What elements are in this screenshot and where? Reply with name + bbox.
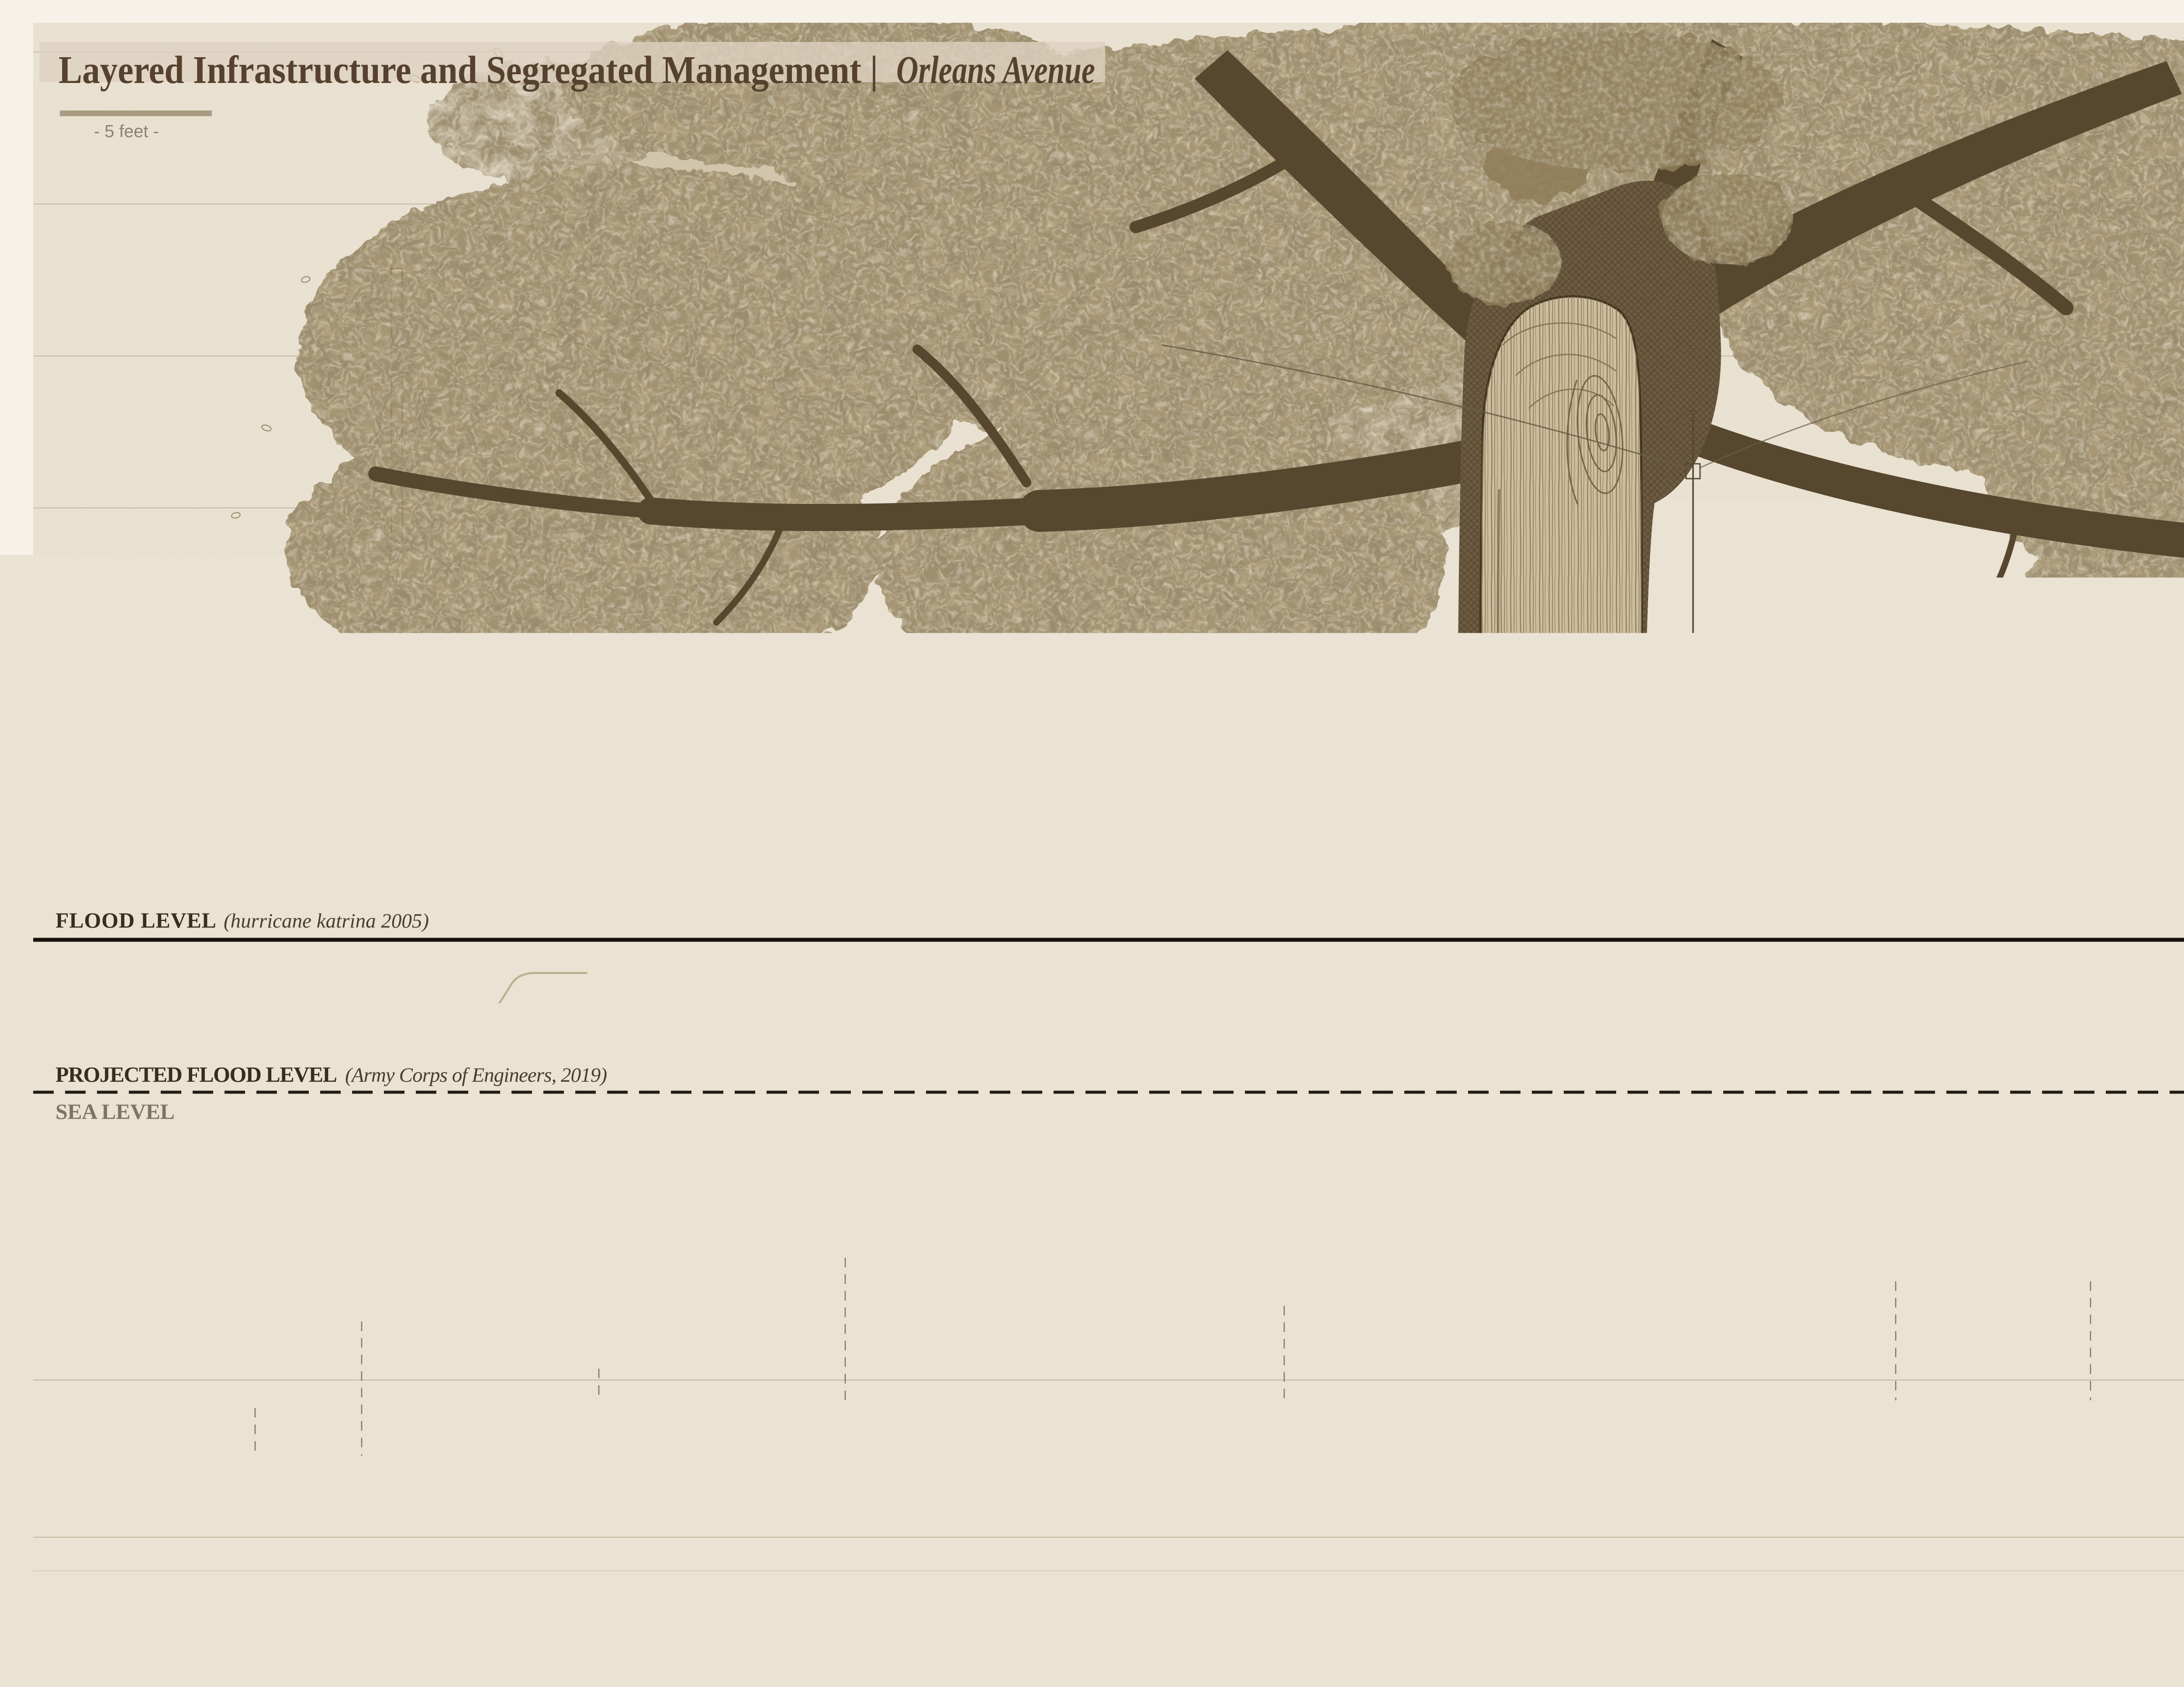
svg-text:- 5 feet -: - 5 feet - <box>94 122 159 141</box>
svg-text:Layered Infrastructure and Seg: Layered Infrastructure and Segregated Ma… <box>59 48 878 92</box>
svg-text:PROJECTED FLOOD LEVEL: PROJECTED FLOOD LEVEL <box>55 1062 337 1087</box>
svg-text:(Army Corps of Engineers, 2019: (Army Corps of Engineers, 2019) <box>345 1064 607 1087</box>
svg-text:SEWERAGE AND WATER BOARD: SEWERAGE AND WATER BOARD <box>893 1600 1209 1622</box>
svg-text:SEA LEVEL: SEA LEVEL <box>55 1099 175 1124</box>
svg-text:PUBLIC WORKS: PUBLIC WORKS <box>1550 1627 1704 1650</box>
svg-text:FLOOD LEVEL: FLOOD LEVEL <box>55 908 216 932</box>
svg-text:PUBLIC WORKS/: PUBLIC WORKS/ <box>374 1545 534 1568</box>
svg-text:PRIVATE OWNER: PRIVATE OWNER <box>374 1574 540 1597</box>
svg-text:Orleans Avenue: Orleans Avenue <box>896 48 1095 92</box>
svg-text:(hurricane katrina 2005): (hurricane katrina 2005) <box>224 910 429 932</box>
svg-text:SEWERAGE AND WATER BOARD: SEWERAGE AND WATER BOARD <box>2177 1627 2184 1650</box>
svg-text:ENTERGY co.: ENTERGY co. <box>374 1603 504 1625</box>
svg-text:PARKS AND PARKWAYS: PARKS AND PARKWAYS <box>2099 1600 2184 1622</box>
svg-text:RESPONSIBLE SECTORS: RESPONSIBLE SECTORS <box>98 1545 336 1566</box>
svg-text:SEWERAGE AND WATER BOARD: SEWERAGE AND WATER BOARD <box>1907 1575 2184 1597</box>
